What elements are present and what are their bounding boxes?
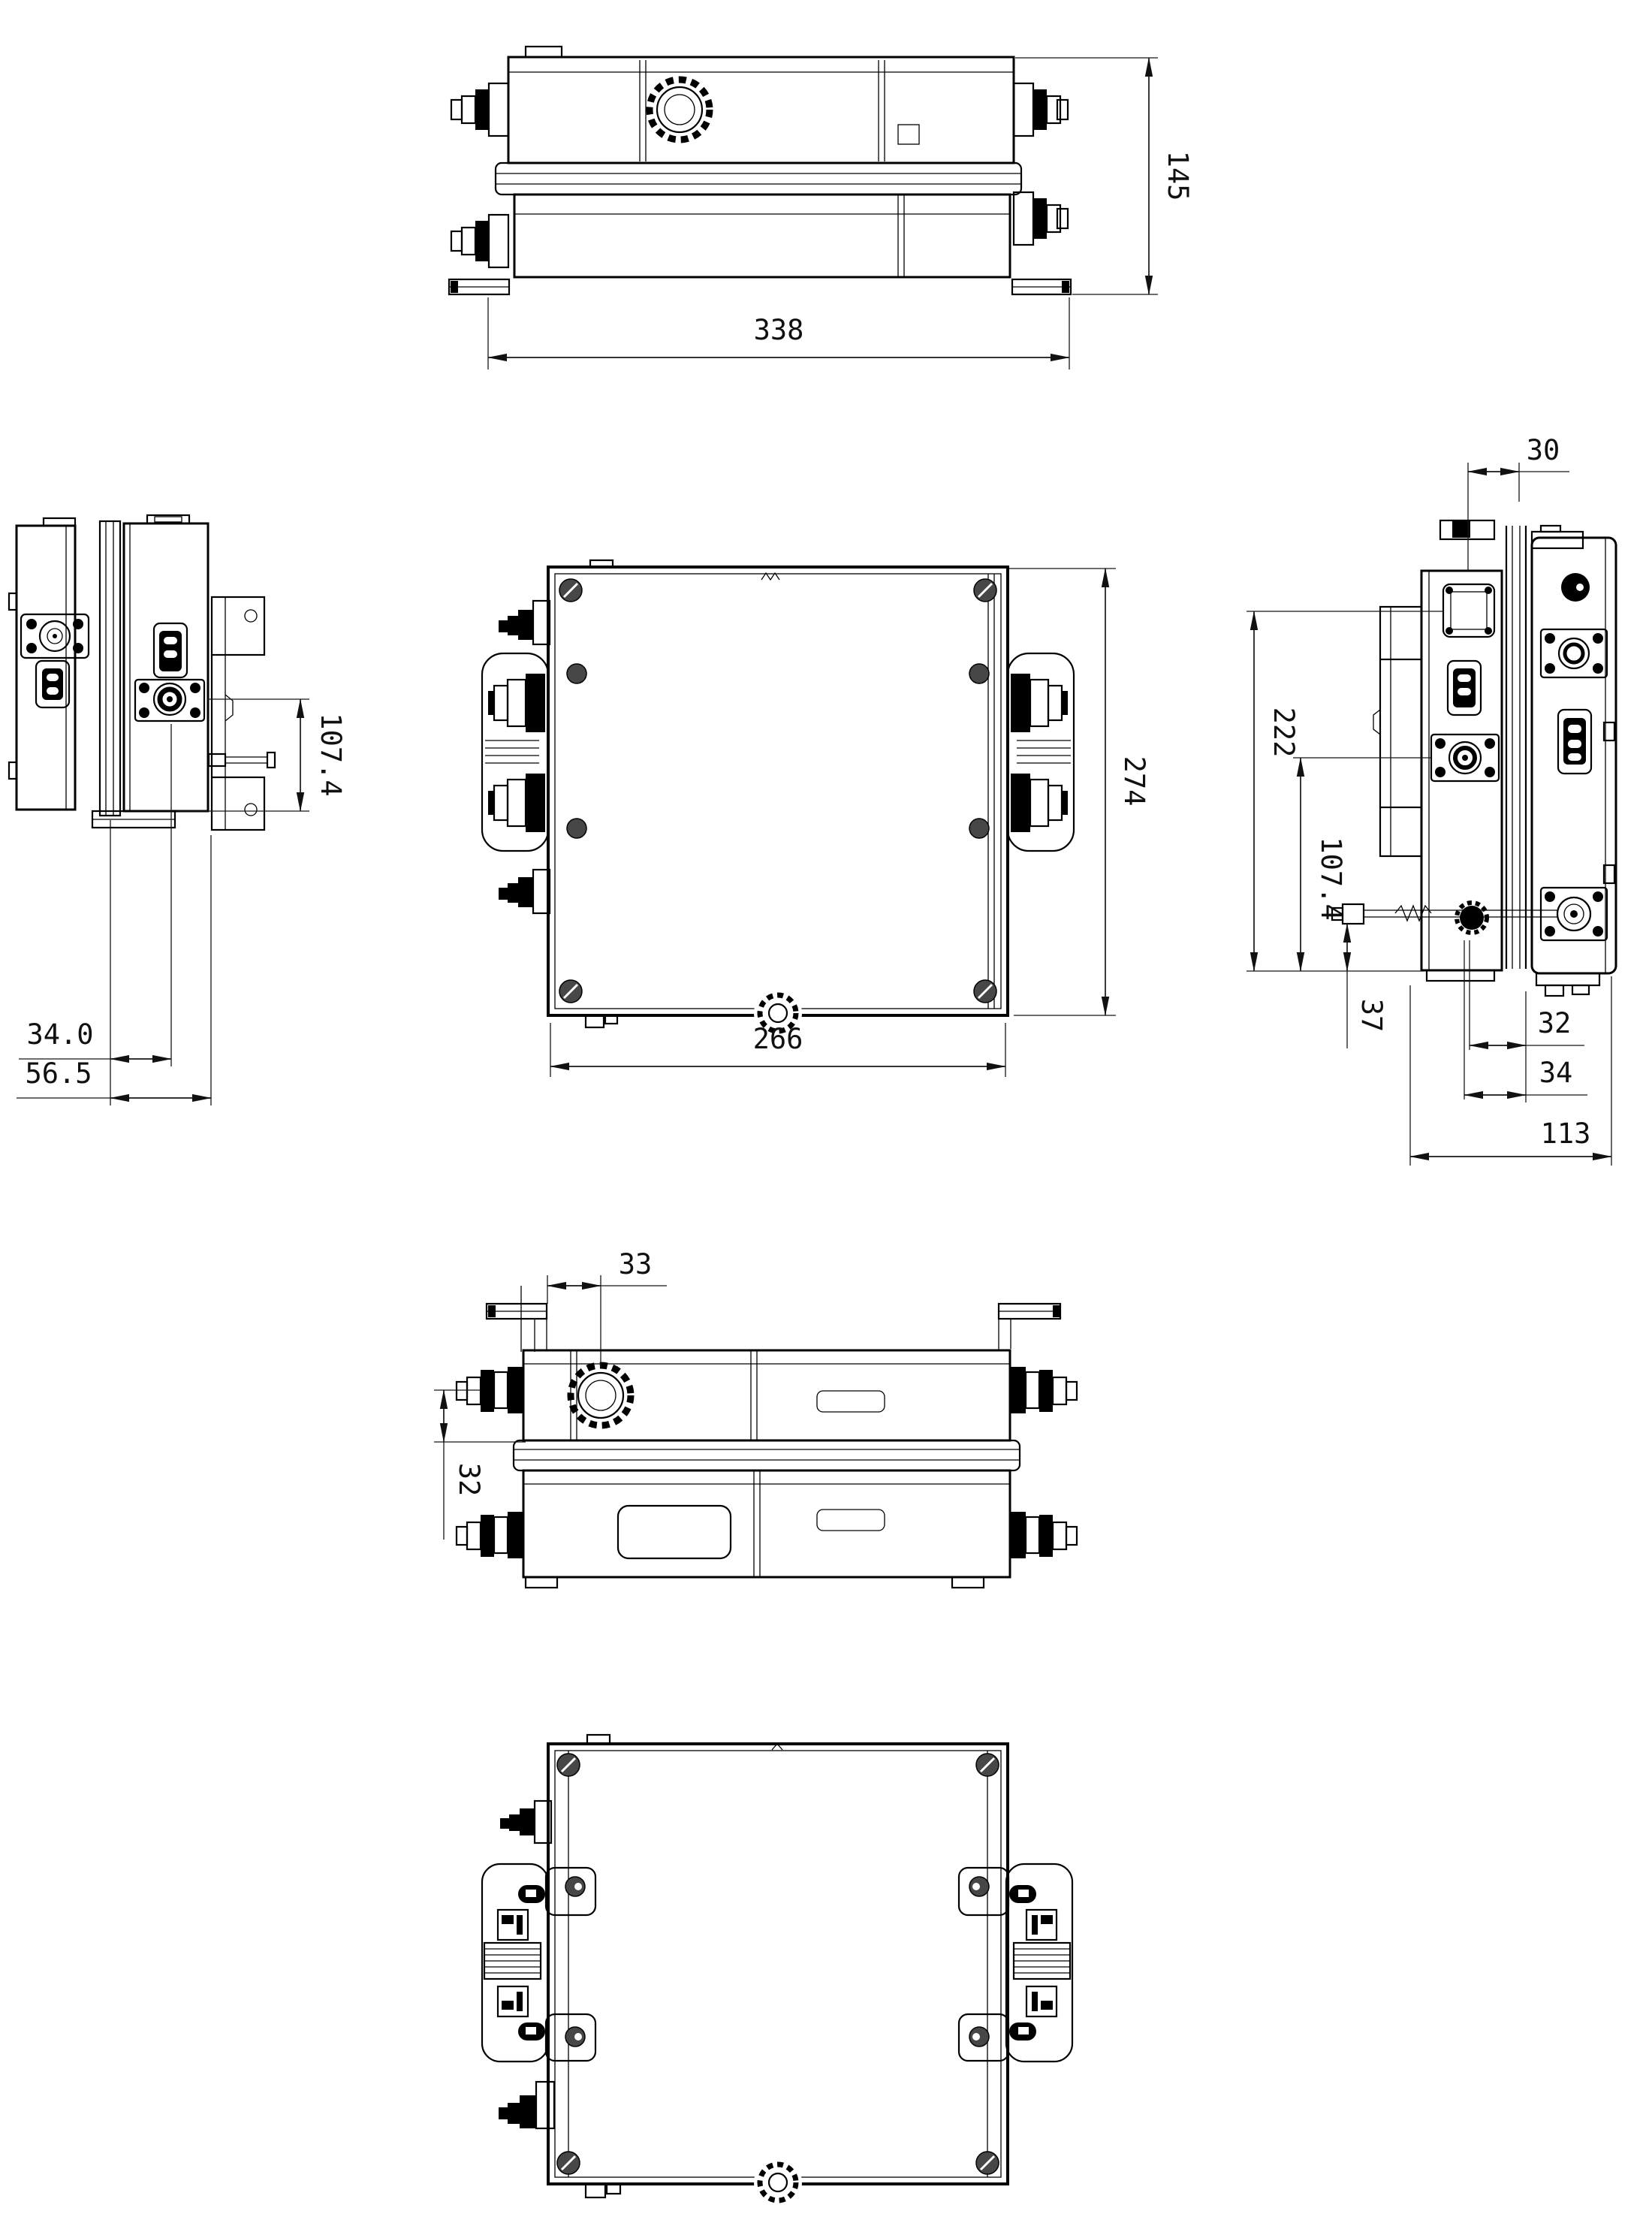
- dimension-connector-height: 107.4: [1293, 758, 1431, 971]
- right-side-view: 30 222 107.4 37 32 34 113: [1247, 434, 1616, 1166]
- coax-connector: [1014, 192, 1068, 245]
- corner-screw: [976, 1754, 999, 1776]
- side-bumper: [482, 653, 586, 851]
- rj45-port-icon: [1443, 584, 1494, 637]
- bottom-view: [482, 1735, 1072, 2206]
- dimension-width: 338: [488, 297, 1069, 369]
- mount-foot-left: [449, 279, 509, 294]
- data-connector: [36, 661, 69, 707]
- dim-label-right-pin: 37: [1355, 999, 1388, 1033]
- bolt: [499, 601, 550, 644]
- dim-label-right-conn: 107.4: [1315, 837, 1347, 920]
- dim-label-right-height: 222: [1268, 707, 1300, 758]
- din-rail-bracket: [1373, 607, 1421, 856]
- coax-connector: [1010, 1512, 1077, 1558]
- front-view: 274 266: [482, 560, 1150, 1077]
- round-connector: [1541, 888, 1607, 940]
- round-connector: [135, 680, 204, 721]
- dim-label-right-port: 30: [1527, 434, 1560, 466]
- coax-connector: [1010, 1367, 1077, 1413]
- corner-screw: [976, 2152, 999, 2174]
- dim-label-left-height: 107.4: [315, 713, 347, 796]
- dim-label-right-a: 32: [1538, 1007, 1572, 1039]
- coax-connector: [1014, 83, 1068, 136]
- coax-connector: [451, 83, 508, 136]
- left-side-view: 107.4 34.0 56.5: [9, 515, 347, 1105]
- corner-screw: [974, 980, 996, 1003]
- captive-screw: [754, 2158, 802, 2206]
- dim-label-rear-conn: 32: [453, 1463, 485, 1497]
- dim-label-right-b: 34: [1539, 1057, 1573, 1089]
- mount-foot-left: [487, 1286, 547, 1352]
- corner-screw: [557, 1754, 580, 1776]
- round-connector: [1541, 629, 1607, 677]
- coax-connector: [451, 215, 508, 267]
- dim-label-left-edge: 56.5: [25, 1057, 92, 1090]
- bolt: [499, 2082, 554, 2128]
- label-plate: [618, 1506, 731, 1558]
- gear-knob-icon: [571, 1365, 631, 1425]
- dimension-connector-height: 107.4: [177, 699, 347, 811]
- dim-label-top-depth: 145: [1162, 151, 1194, 201]
- dim-label-left-conn: 34.0: [26, 1018, 93, 1051]
- mounting-plate-assembly: [482, 1864, 595, 2062]
- corner-screw: [559, 579, 582, 602]
- dimension-width: 266: [550, 1023, 1005, 1077]
- dimension-pin-height: 37: [1347, 924, 1388, 1048]
- bolt: [500, 1801, 551, 1843]
- corner-screw: [559, 980, 582, 1003]
- data-connector: [154, 623, 187, 677]
- mount-foot-right: [999, 1304, 1060, 1350]
- lanyard-pin: [1332, 903, 1557, 933]
- coax-connector: [457, 1512, 523, 1558]
- dim-label-front-width: 266: [753, 1023, 803, 1055]
- data-connector: [1558, 710, 1591, 774]
- dim-label-right-depth: 113: [1541, 1118, 1591, 1150]
- connector-profile: [1561, 573, 1590, 602]
- dim-label-top-width: 338: [754, 314, 804, 346]
- grounding-pin: [209, 753, 275, 768]
- rear-view: 33 32: [434, 1248, 1077, 1588]
- bolt: [499, 870, 550, 913]
- mount-foot-right: [1012, 279, 1071, 294]
- dimension-port-offset: 30: [1468, 434, 1569, 571]
- dim-label-front-height: 274: [1118, 756, 1150, 807]
- data-connector: [1448, 661, 1481, 715]
- corner-screw: [974, 579, 996, 602]
- dimension-knob-offset: 33: [547, 1248, 667, 1367]
- din-rail-bracket: [212, 597, 264, 830]
- dimension-depth: 113: [1410, 976, 1611, 1166]
- gear-knob-icon: [650, 80, 710, 140]
- corner-screw: [557, 2152, 580, 2174]
- top-view: 145 338: [449, 47, 1194, 369]
- engineering-drawing-sheet: 145 338: [0, 0, 1652, 2223]
- dim-label-rear-knob: 33: [619, 1248, 653, 1280]
- round-connector: [1431, 734, 1499, 781]
- round-flange-connector: [21, 614, 89, 658]
